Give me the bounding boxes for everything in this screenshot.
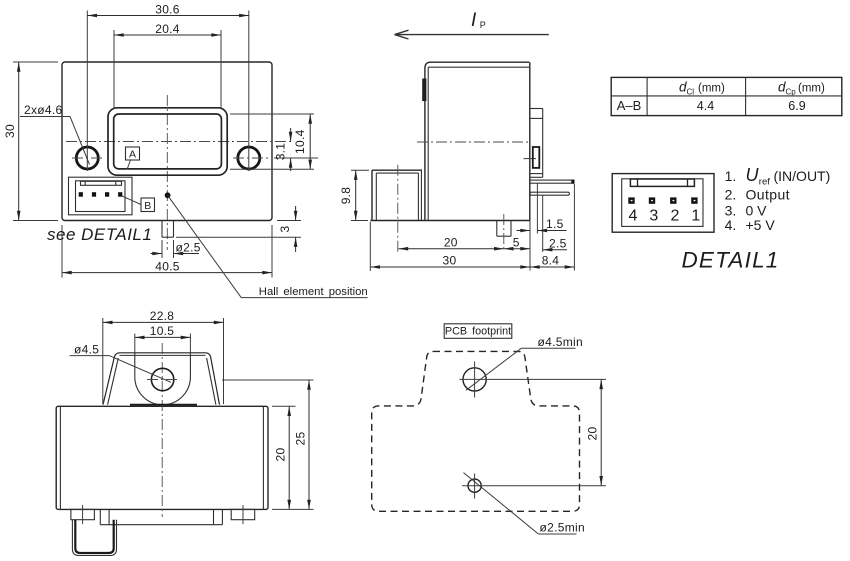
svg-text:1.5: 1.5 [546, 217, 564, 231]
svg-text:3: 3 [278, 225, 292, 232]
svg-text:Cl: Cl [687, 88, 695, 97]
svg-text:22.8: 22.8 [150, 309, 175, 323]
svg-text:PCB footprint: PCB footprint [445, 326, 511, 338]
svg-text:20.4: 20.4 [155, 22, 180, 36]
svg-text:(IN/OUT): (IN/OUT) [774, 168, 831, 184]
svg-text:4: 4 [629, 207, 638, 224]
svg-text:30: 30 [443, 254, 457, 268]
svg-text:8.4: 8.4 [542, 254, 560, 268]
svg-text:4.: 4. [725, 217, 737, 233]
svg-text:1.: 1. [725, 168, 737, 184]
svg-text:ø4.5: ø4.5 [74, 342, 99, 356]
svg-text:B: B [144, 200, 151, 212]
svg-text:2.: 2. [725, 187, 737, 203]
svg-text:Cp: Cp [786, 88, 797, 97]
svg-text:30.6: 30.6 [155, 3, 180, 17]
svg-text:A: A [129, 148, 136, 160]
svg-text:20: 20 [274, 448, 288, 462]
svg-text:4.4: 4.4 [697, 99, 714, 113]
svg-text:(mm): (mm) [798, 83, 825, 95]
svg-text:ø4.5min: ø4.5min [538, 335, 583, 349]
svg-text:2xø4.6: 2xø4.6 [24, 103, 63, 117]
svg-text:ø2.5min: ø2.5min [540, 521, 585, 535]
svg-text:A–B: A–B [617, 98, 642, 113]
svg-text:2: 2 [670, 207, 679, 224]
svg-text:Hall element position: Hall element position [259, 286, 368, 298]
svg-text:Output: Output [746, 187, 790, 203]
svg-text:20: 20 [444, 235, 458, 249]
svg-text:30: 30 [3, 124, 17, 138]
svg-text:5: 5 [513, 235, 520, 249]
svg-text:25: 25 [294, 432, 308, 446]
svg-text:1: 1 [691, 207, 700, 224]
svg-text:20: 20 [586, 427, 600, 441]
svg-text:+5 V: +5 V [746, 217, 776, 233]
svg-text:9.8: 9.8 [339, 187, 353, 205]
svg-text:10.5: 10.5 [150, 324, 175, 338]
svg-text:10.4: 10.4 [293, 129, 307, 154]
svg-text:DETAIL1: DETAIL1 [681, 248, 779, 273]
svg-text:P: P [480, 20, 486, 30]
svg-text:40.5: 40.5 [155, 259, 180, 273]
svg-text:see DETAIL1: see DETAIL1 [47, 225, 152, 244]
svg-text:6.9: 6.9 [788, 99, 805, 113]
svg-text:I: I [471, 10, 477, 31]
svg-text:(mm): (mm) [698, 83, 725, 95]
svg-text:3: 3 [649, 207, 658, 224]
svg-text:U: U [746, 165, 760, 185]
svg-text:ø2.5: ø2.5 [176, 241, 201, 255]
svg-text:3.1: 3.1 [274, 143, 288, 161]
svg-text:2.5: 2.5 [549, 236, 567, 250]
